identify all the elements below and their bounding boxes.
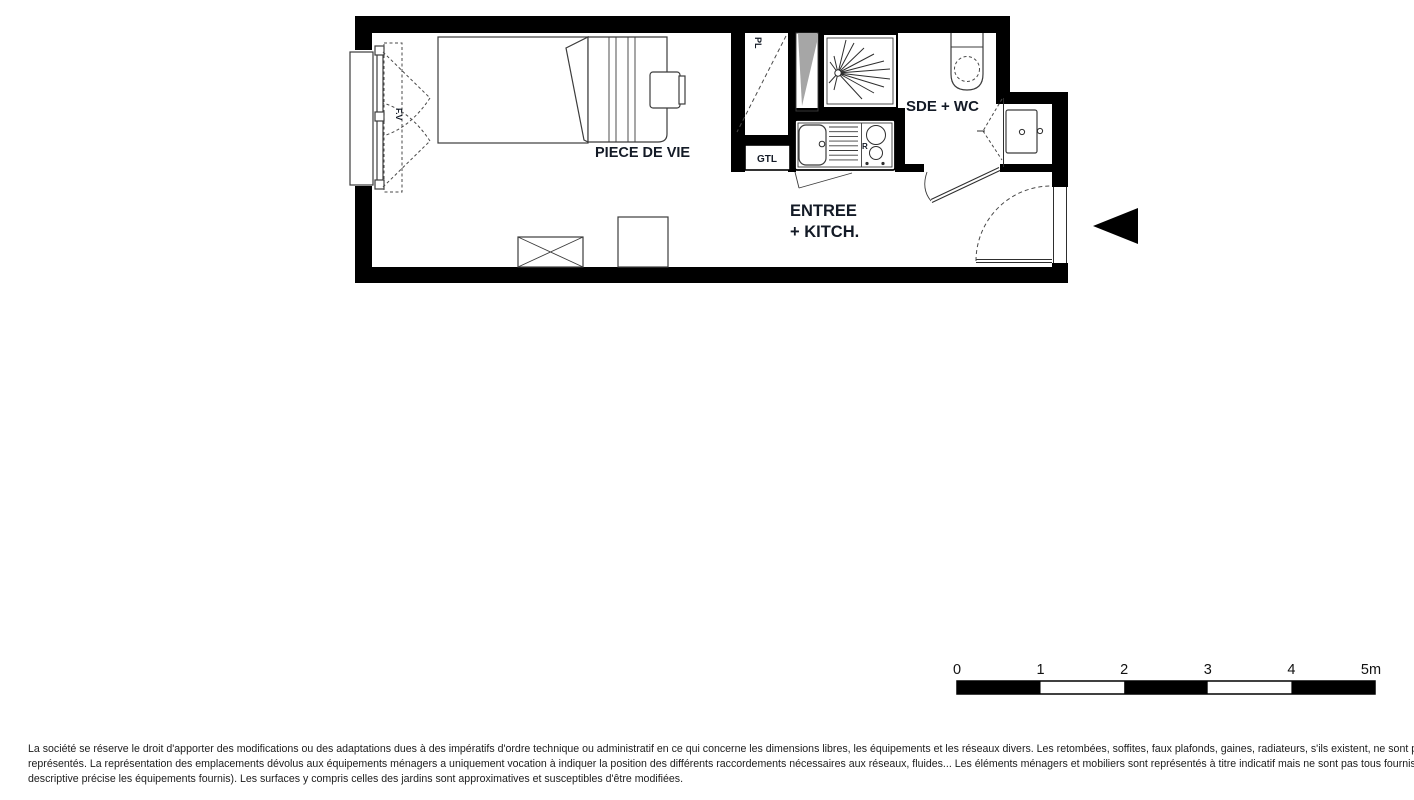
closet-label: PL: [753, 37, 763, 49]
floorplan-drawing: F.V PL GTL: [0, 0, 1414, 800]
shower: [823, 34, 897, 108]
bathroom-door: [925, 168, 1000, 203]
floorplan-page: F.V PL GTL: [0, 0, 1414, 800]
bathroom-label: SDE + WC: [906, 98, 979, 115]
washbasin: [1006, 110, 1037, 153]
scale-tick-3: 3: [1204, 662, 1212, 678]
bed: [438, 37, 588, 143]
scale-tick-2: 2: [1120, 662, 1128, 678]
toilet: [951, 33, 983, 90]
entrance-arrow-icon: [1093, 208, 1138, 244]
french-window: F.V: [350, 43, 430, 192]
hob-label: R: [862, 142, 868, 151]
legal-disclaimer: La société se réserve le droit d'apporte…: [28, 742, 1408, 787]
chair: [650, 72, 685, 108]
stool: [618, 217, 668, 267]
duct: [796, 33, 818, 111]
casement-swing: [383, 52, 430, 98]
scale-bar: 0 1 2 3 4 5m: [953, 662, 1381, 694]
scale-tick-5m: 5m: [1361, 662, 1381, 678]
entrance-door-leaf: [976, 260, 1052, 263]
living-room-label: PIECE DE VIE: [595, 145, 690, 161]
kitchenette: R: [795, 120, 895, 188]
entry-label-line2: + KITCH.: [790, 223, 859, 241]
disclaimer-line-3: descriptive précise les équipements four…: [28, 772, 1408, 787]
gtl-label: GTL: [757, 154, 777, 165]
low-table: [518, 237, 583, 267]
disclaimer-line-2: représentés. La représentation des empla…: [28, 757, 1408, 772]
scale-tick-0: 0: [953, 662, 961, 678]
entry-label-line1: ENTREE: [790, 202, 857, 220]
kitchen-sink: [799, 125, 826, 165]
disclaimer-line-1: La société se réserve le droit d'apporte…: [28, 742, 1408, 757]
entrance-door-swing: [976, 186, 1052, 261]
scale-tick-1: 1: [1037, 662, 1045, 678]
scale-tick-4: 4: [1287, 662, 1295, 678]
gtl-box: GTL: [745, 145, 790, 170]
entrance-door: [976, 186, 1067, 263]
window-label: F.V: [394, 108, 404, 121]
vanity: [977, 98, 1043, 167]
kitchen-folding-door: [795, 172, 852, 188]
vanity-door-swing: [983, 99, 1002, 160]
window-sill: [350, 52, 373, 185]
